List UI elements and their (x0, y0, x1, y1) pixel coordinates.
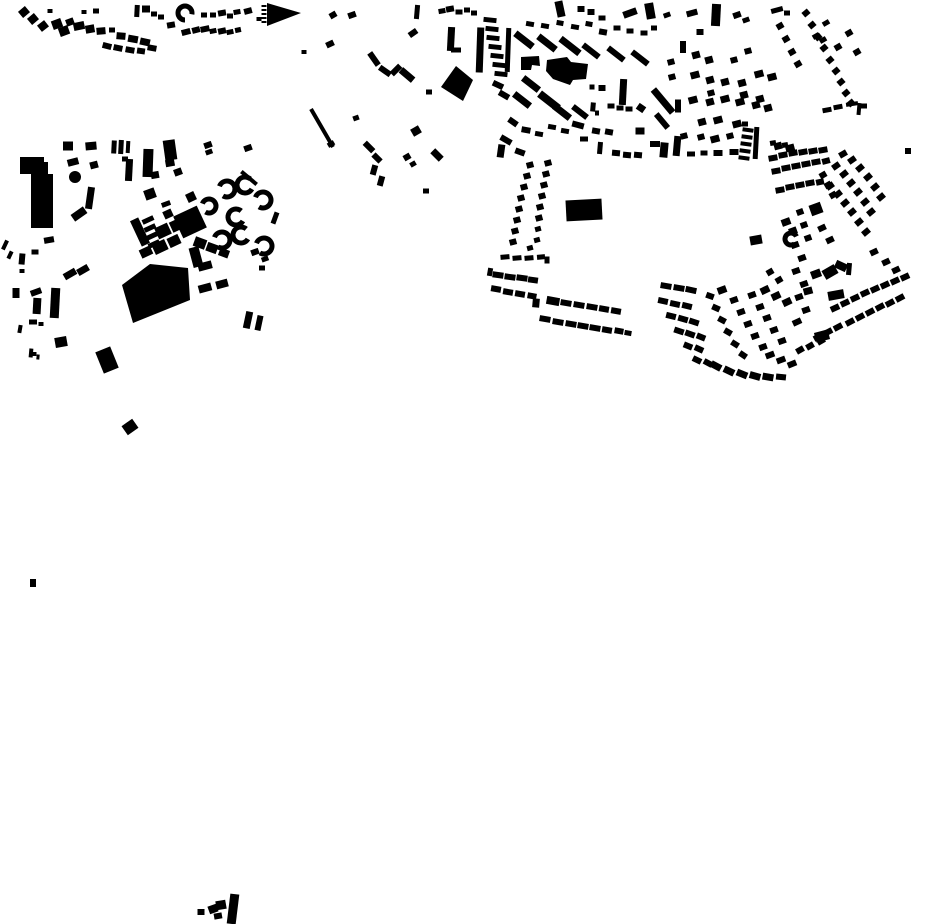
building (895, 293, 906, 303)
building (581, 42, 600, 59)
building (758, 343, 768, 351)
building (852, 48, 861, 57)
building (558, 36, 581, 56)
building (325, 40, 335, 49)
building (771, 167, 781, 174)
building (742, 122, 748, 127)
building (822, 19, 831, 27)
building (870, 182, 880, 192)
building (27, 13, 39, 25)
building (253, 190, 274, 211)
building (846, 263, 852, 275)
building (227, 894, 240, 924)
building (262, 21, 267, 23)
building (673, 327, 684, 336)
building (226, 29, 234, 35)
building (29, 320, 37, 325)
building (860, 288, 871, 297)
building (730, 56, 738, 64)
building (201, 13, 207, 18)
building (271, 212, 280, 225)
building (729, 296, 739, 304)
building (492, 62, 505, 68)
building (713, 115, 724, 124)
building (214, 912, 223, 919)
building (113, 44, 123, 52)
building (850, 293, 861, 302)
building (840, 298, 851, 307)
building (347, 11, 357, 19)
building (109, 28, 115, 33)
building (833, 322, 844, 332)
building (499, 134, 512, 145)
building (571, 121, 584, 130)
building (876, 192, 886, 202)
building (855, 312, 866, 322)
building (831, 161, 841, 171)
building (800, 221, 809, 229)
building (173, 206, 207, 239)
building (771, 6, 784, 14)
building (571, 104, 589, 120)
building (93, 9, 99, 14)
building (471, 11, 477, 16)
building (762, 373, 774, 382)
building (476, 27, 485, 72)
building (503, 288, 514, 296)
building (514, 147, 525, 156)
building (515, 290, 526, 298)
building (243, 144, 253, 152)
building (765, 268, 774, 277)
building (854, 217, 864, 227)
building (492, 80, 505, 90)
building (414, 5, 420, 19)
building (363, 141, 376, 154)
building (861, 227, 871, 237)
building (490, 53, 503, 59)
building (619, 79, 627, 105)
building (539, 315, 551, 323)
building (762, 314, 772, 322)
building (513, 216, 521, 224)
building (827, 289, 844, 301)
building (717, 315, 727, 324)
building (822, 107, 832, 113)
building (144, 223, 157, 233)
building (665, 312, 676, 320)
building (622, 7, 638, 18)
building (505, 28, 512, 72)
building (815, 178, 824, 186)
building (446, 5, 455, 12)
building (560, 299, 572, 307)
building (17, 325, 22, 334)
building (19, 253, 26, 264)
building (847, 155, 857, 165)
building (768, 154, 778, 161)
building (162, 208, 174, 219)
building (464, 8, 470, 13)
building (688, 318, 699, 327)
building (73, 21, 85, 31)
building (776, 356, 787, 365)
building (571, 24, 580, 30)
building (836, 77, 845, 86)
building (730, 339, 740, 348)
building (741, 134, 752, 139)
building (881, 258, 891, 267)
building (509, 238, 517, 246)
building (817, 224, 827, 233)
building (782, 142, 789, 148)
building (102, 42, 112, 50)
building (691, 51, 701, 60)
building (592, 127, 601, 134)
building (775, 186, 785, 193)
building (533, 237, 540, 243)
building (585, 21, 593, 27)
building (807, 20, 816, 29)
building (778, 151, 788, 158)
building (803, 286, 814, 295)
building (799, 280, 809, 288)
building (796, 208, 805, 216)
building (410, 125, 422, 136)
building (534, 226, 541, 232)
building (830, 303, 841, 312)
building (885, 298, 896, 308)
building (811, 158, 821, 165)
building (738, 155, 749, 160)
building (705, 98, 715, 107)
building (504, 273, 516, 280)
building (688, 95, 699, 104)
building (759, 285, 770, 295)
building (597, 142, 603, 154)
building (669, 300, 680, 308)
building (1, 240, 9, 251)
building (535, 214, 543, 222)
building (143, 149, 154, 177)
building (833, 104, 843, 110)
building (717, 285, 728, 295)
building (250, 248, 260, 256)
building (785, 183, 795, 190)
building (612, 150, 620, 157)
building (227, 14, 233, 19)
building (781, 164, 791, 171)
building (863, 172, 873, 182)
building (580, 137, 588, 142)
building (742, 16, 750, 23)
building (262, 17, 267, 19)
building (573, 301, 585, 309)
building (173, 167, 183, 176)
building (198, 282, 213, 293)
building (739, 91, 749, 100)
building (660, 282, 672, 290)
building (723, 327, 733, 336)
building (774, 276, 783, 285)
building (537, 254, 545, 260)
building (126, 141, 131, 153)
building (225, 206, 247, 228)
building (487, 268, 493, 277)
building (744, 47, 752, 55)
building (399, 67, 416, 83)
building (521, 56, 540, 70)
building (95, 346, 118, 373)
building (860, 197, 870, 207)
building (111, 140, 117, 153)
building (122, 264, 190, 323)
building (161, 200, 171, 208)
building (753, 127, 760, 159)
building (441, 66, 473, 101)
building (831, 66, 840, 75)
building (230, 224, 252, 246)
building (590, 102, 596, 111)
building (684, 329, 695, 338)
building (85, 142, 97, 151)
building (720, 94, 731, 103)
building (32, 250, 39, 255)
building (793, 60, 802, 69)
building (694, 344, 705, 353)
building (797, 254, 807, 262)
building (880, 280, 891, 289)
building (667, 58, 675, 66)
building (818, 146, 828, 153)
building (209, 28, 217, 34)
building (680, 132, 688, 140)
building (409, 160, 417, 167)
building (524, 255, 533, 261)
building (578, 6, 585, 12)
building (825, 55, 834, 64)
building (606, 45, 625, 62)
building (30, 579, 36, 587)
building (6, 251, 13, 260)
building (636, 128, 645, 135)
building (705, 76, 715, 85)
building (627, 29, 634, 34)
building (541, 23, 550, 29)
building (122, 419, 139, 435)
building (847, 207, 857, 217)
building (367, 51, 381, 67)
building (370, 164, 378, 175)
building (523, 172, 531, 180)
building (423, 189, 429, 194)
building (673, 136, 682, 157)
building (749, 235, 762, 246)
building (548, 124, 557, 130)
building (540, 181, 548, 189)
building (430, 148, 443, 161)
building (686, 9, 698, 18)
building (711, 4, 721, 26)
building (859, 104, 867, 109)
building (492, 271, 504, 278)
building (742, 127, 753, 132)
building (54, 336, 68, 348)
building (747, 291, 757, 299)
building (605, 128, 614, 135)
building (517, 194, 525, 202)
building (611, 307, 622, 315)
building (781, 217, 792, 227)
building (801, 8, 810, 17)
building (787, 360, 798, 369)
building (491, 285, 502, 293)
building (243, 7, 252, 15)
building (589, 324, 601, 332)
building (588, 9, 595, 15)
building (408, 28, 419, 38)
building (841, 88, 850, 97)
building (685, 286, 697, 294)
building (158, 15, 164, 20)
building (614, 26, 621, 31)
building (736, 308, 746, 316)
building (554, 0, 565, 17)
building (599, 85, 606, 91)
building (76, 264, 90, 276)
building (13, 288, 20, 298)
building (20, 269, 25, 273)
building (720, 78, 730, 87)
building (808, 202, 823, 216)
building (730, 149, 739, 155)
building (261, 255, 269, 262)
building (644, 2, 656, 19)
building (845, 317, 856, 327)
building (302, 50, 307, 54)
building (866, 207, 876, 217)
building (711, 304, 721, 313)
building (781, 35, 790, 44)
building (515, 205, 523, 213)
building (116, 32, 126, 40)
building (770, 140, 777, 146)
building (805, 179, 815, 186)
building (599, 28, 608, 35)
building (125, 159, 133, 181)
building (542, 170, 550, 178)
building (48, 9, 53, 13)
building (791, 162, 801, 169)
building (151, 12, 157, 17)
building (775, 22, 784, 31)
building (516, 274, 528, 281)
building (526, 21, 535, 27)
building (30, 287, 42, 296)
building (39, 322, 44, 326)
building (663, 11, 671, 18)
building (801, 160, 811, 167)
building (532, 298, 540, 308)
building (44, 236, 55, 244)
building (71, 206, 88, 221)
building (512, 255, 521, 261)
building (215, 279, 229, 290)
building (697, 29, 704, 35)
building (127, 35, 138, 44)
building (737, 79, 747, 88)
building (805, 341, 815, 350)
building (181, 28, 191, 36)
building (511, 227, 519, 235)
building (754, 69, 765, 78)
building (739, 148, 750, 153)
building (217, 27, 226, 35)
building (890, 276, 901, 285)
building (749, 371, 762, 381)
building (451, 48, 461, 53)
building (798, 148, 808, 155)
building (804, 234, 813, 242)
building (657, 297, 668, 305)
building (577, 322, 589, 330)
building (267, 3, 301, 26)
building (687, 152, 695, 157)
building (89, 161, 99, 170)
building (765, 351, 776, 360)
building (82, 10, 87, 14)
building (692, 355, 703, 364)
building (840, 198, 850, 208)
building (257, 17, 262, 21)
building (905, 148, 911, 154)
building (528, 276, 539, 283)
building (714, 150, 723, 156)
building (825, 236, 835, 245)
building (794, 293, 804, 301)
building (125, 46, 135, 53)
building (736, 369, 749, 380)
building (614, 327, 624, 334)
building (590, 85, 595, 90)
building (163, 139, 178, 160)
building (200, 25, 210, 33)
building (118, 140, 124, 154)
building (538, 192, 546, 200)
building (143, 187, 157, 200)
building (485, 26, 498, 32)
building (69, 171, 81, 183)
building (586, 303, 598, 311)
building (217, 179, 238, 200)
building (85, 24, 95, 33)
building (654, 112, 670, 130)
building (595, 111, 599, 116)
building (203, 141, 213, 149)
building (488, 44, 501, 50)
building (675, 100, 681, 113)
building (767, 72, 778, 81)
building (513, 30, 535, 49)
building (870, 284, 881, 293)
building (787, 48, 796, 57)
building (770, 291, 781, 301)
building (697, 133, 705, 141)
building (33, 298, 42, 314)
building (565, 199, 602, 222)
building (29, 348, 34, 357)
building (808, 147, 818, 154)
